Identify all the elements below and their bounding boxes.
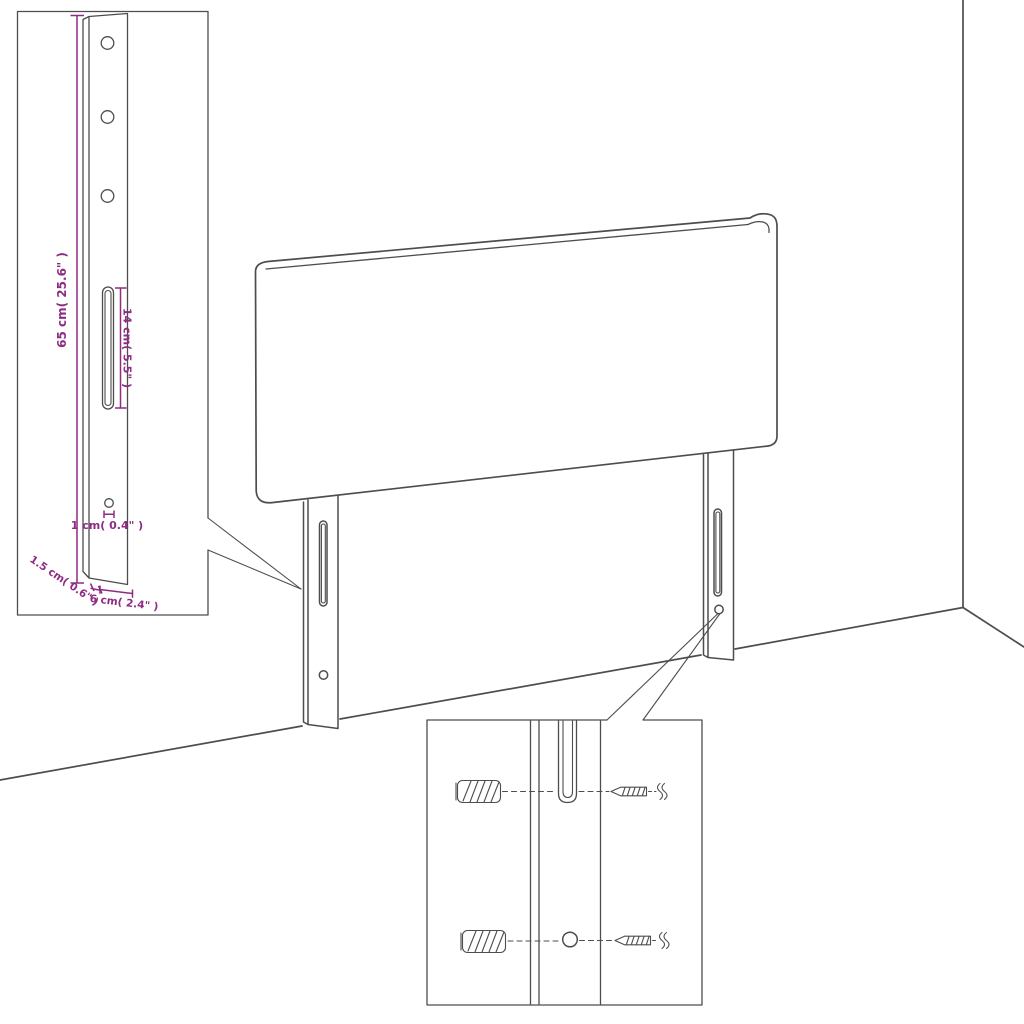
- callout-line-left: [607, 614, 718, 721]
- dimension-hole-label: 1 cm( 0.4" ): [71, 519, 143, 532]
- mounting-detail-frame: [427, 720, 702, 1005]
- floor-line-right: [735, 608, 1024, 650]
- headboard-diagram: 65 cm( 25.6" ) 14 cm( 5.5" ) 1 cm( 0.4" …: [0, 0, 1024, 1024]
- left-leg-hole: [319, 671, 327, 679]
- mounting-detail-inset: [427, 720, 702, 1005]
- diagram-canvas: 65 cm( 25.6" ) 14 cm( 5.5" ) 1 cm( 0.4" …: [0, 0, 1024, 1024]
- right-leg-hole: [715, 605, 723, 613]
- left-leg-slot-inner: [321, 524, 325, 603]
- callout-line-right: [643, 614, 720, 721]
- callout-line-upper: [208, 518, 301, 589]
- dimension-height-label: 65 cm( 25.6" ): [55, 252, 69, 348]
- right-leg-slot-inner: [716, 512, 720, 593]
- floor-line-left: [0, 726, 302, 780]
- left-leg-body: [304, 496, 339, 729]
- headboard-panel: [255, 214, 777, 503]
- leg-detail-inset: 65 cm( 25.6" ) 14 cm( 5.5" ) 1 cm( 0.4" …: [18, 12, 209, 616]
- dimension-slot-label: 14 cm( 5.5" ): [121, 308, 134, 388]
- floor-line-mid: [340, 655, 701, 719]
- callout-line-lower: [208, 550, 301, 589]
- headboard-left-leg: [304, 496, 339, 729]
- detail-callout-lines-left: [208, 518, 301, 589]
- right-leg-slot: [714, 509, 722, 596]
- right-leg-body: [704, 449, 734, 660]
- headboard-outline: [255, 214, 777, 503]
- left-leg-slot: [320, 521, 328, 606]
- headboard-right-leg: [704, 449, 734, 660]
